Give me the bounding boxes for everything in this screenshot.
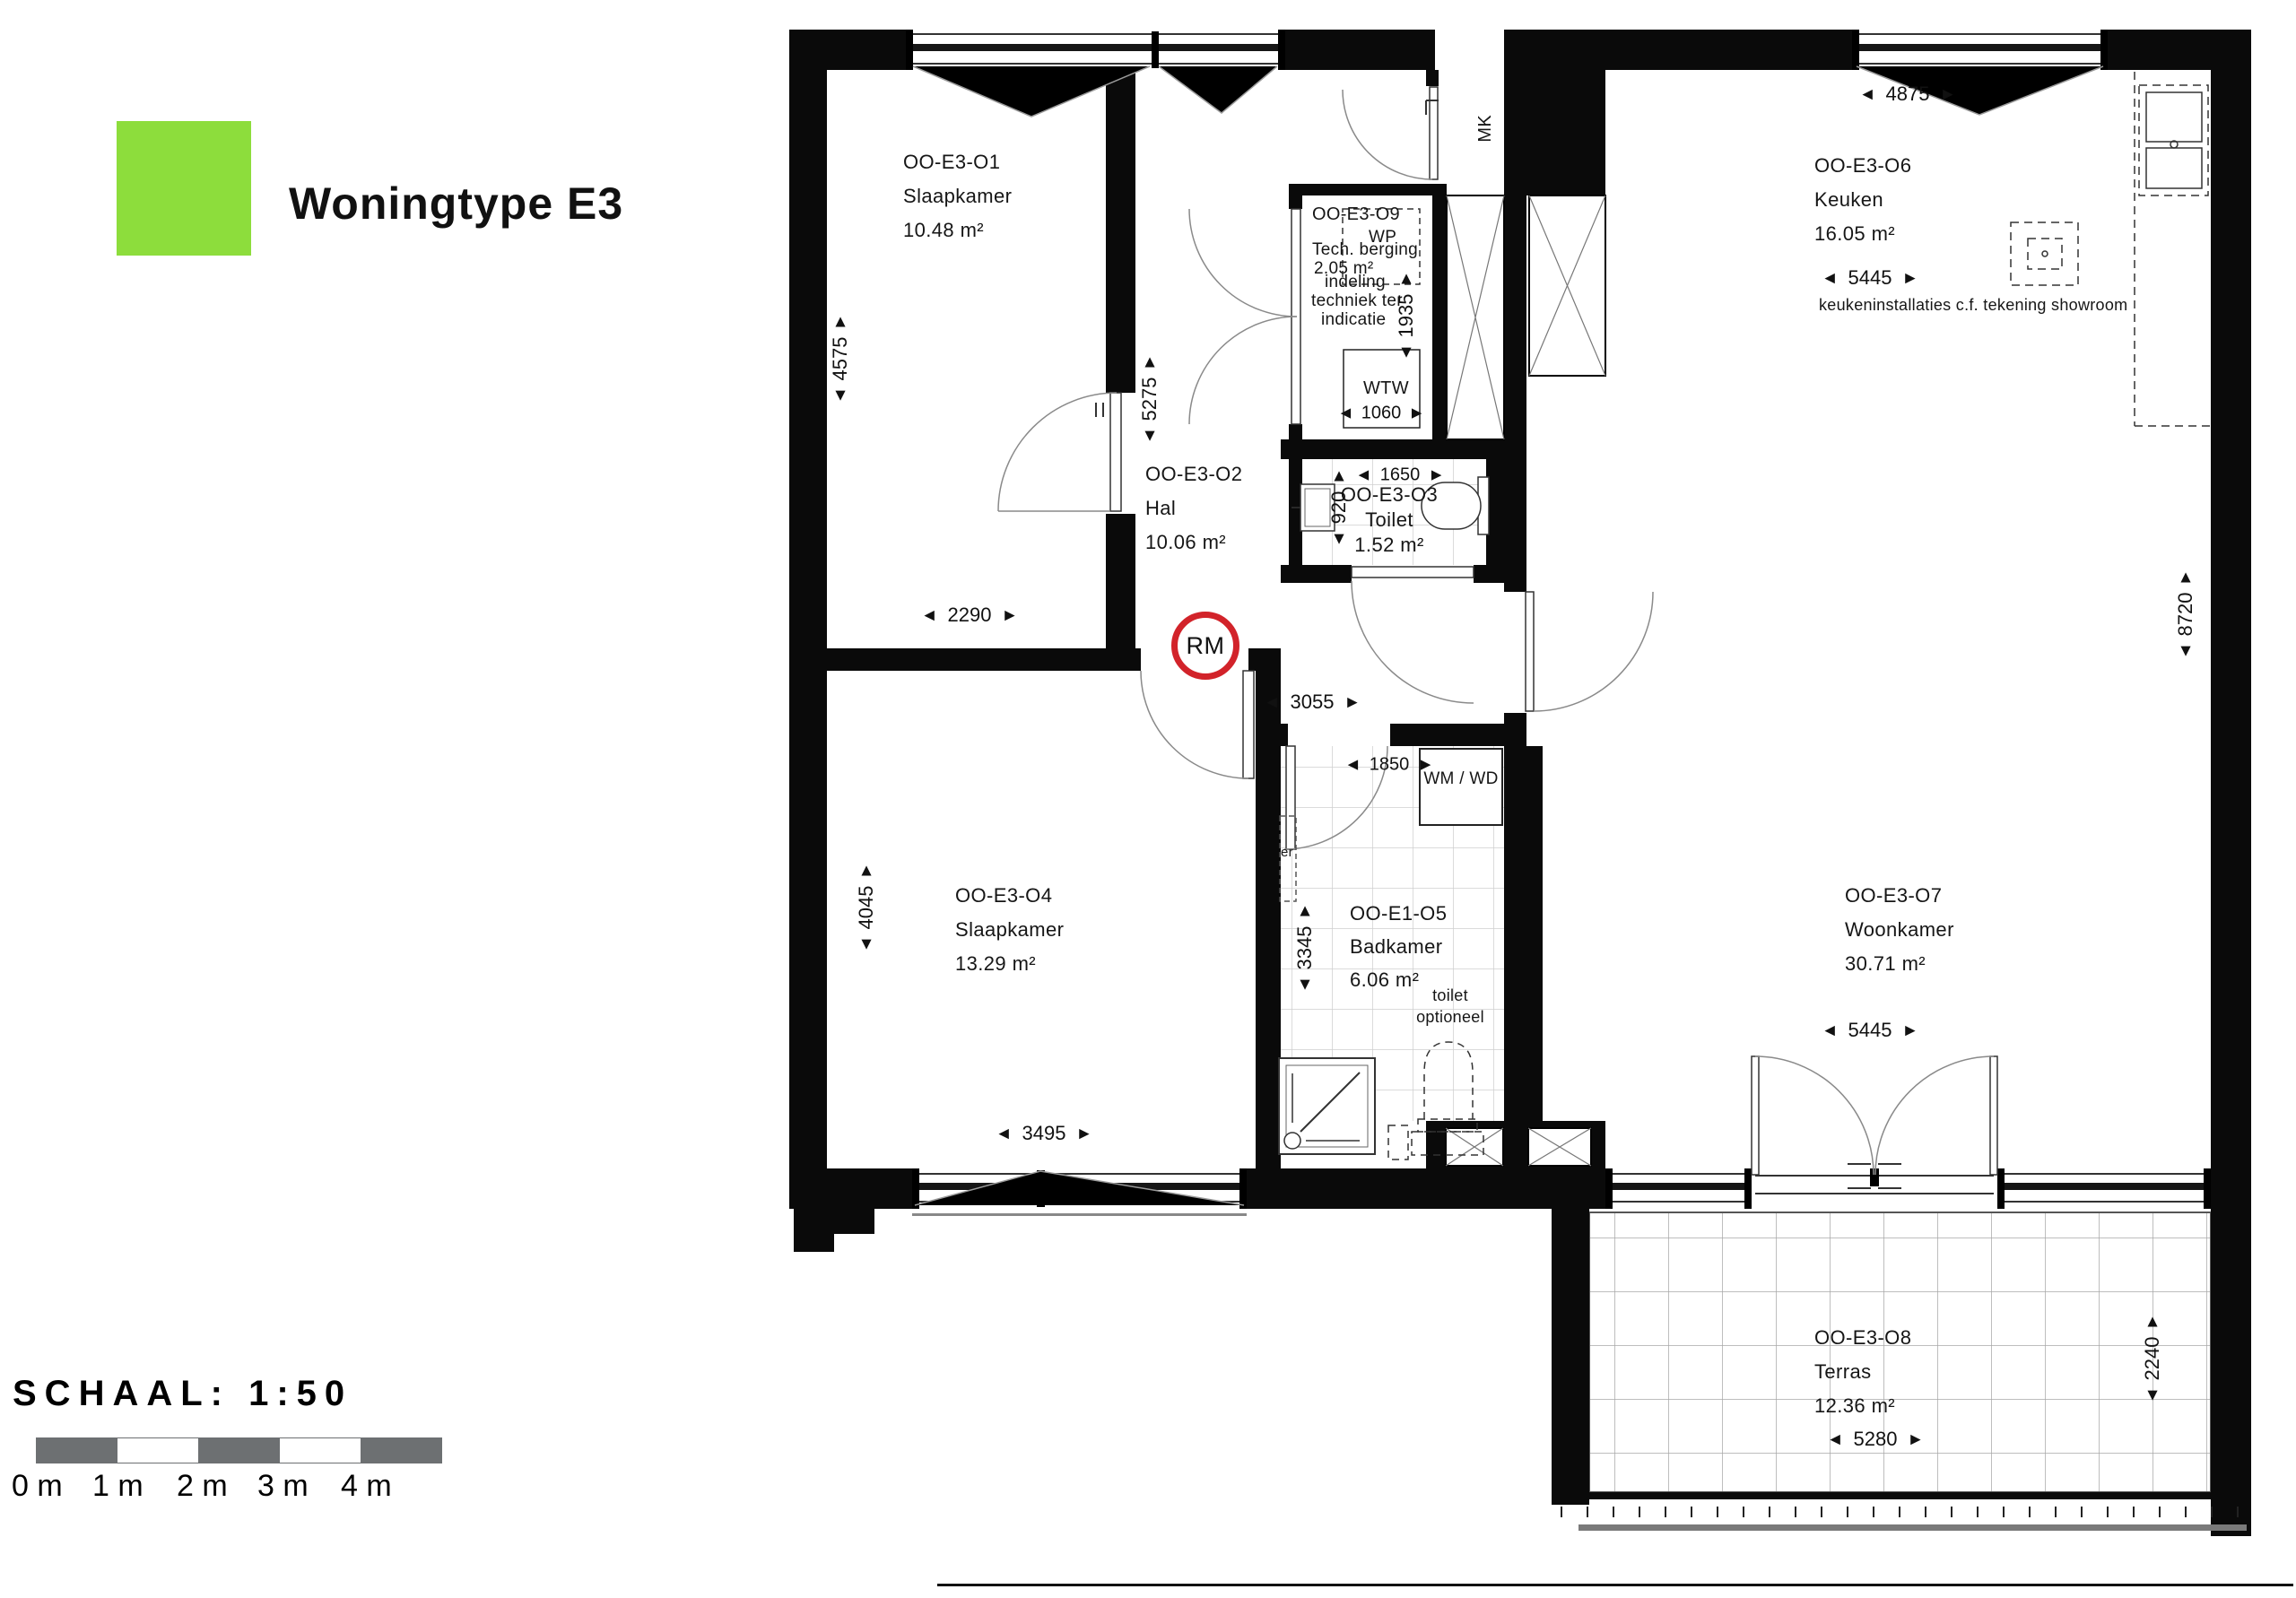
- room-name: Badkamer: [1350, 930, 1447, 963]
- room-name: Slaapkamer: [955, 913, 1064, 947]
- arrow-up-icon: ▲: [1398, 271, 1415, 288]
- scale-tick-2: 2 m: [177, 1469, 228, 1504]
- scale-bar-segment: [117, 1438, 198, 1463]
- arrow-left-icon: ◄: [1355, 467, 1372, 484]
- scale-bar-segment: [361, 1438, 441, 1463]
- window-top-keuken: [1852, 30, 2108, 70]
- room-code: OO-E3-O3: [1341, 482, 1438, 508]
- arrow-right-icon: ►: [1901, 1022, 1918, 1039]
- dim-value: 3495: [1022, 1122, 1066, 1145]
- room-code: OO-E1-O5: [1350, 897, 1447, 930]
- window-bottom-woonkamer-right: [1997, 1168, 2211, 1209]
- wtw-label: WTW: [1363, 378, 1409, 399]
- arrow-up-icon: ▲: [832, 314, 849, 331]
- dim-badkamer-width: ◄ 1850 ►: [1344, 755, 1434, 776]
- window-top-slaapkamer: [906, 30, 1285, 70]
- arrow-left-icon: ◄: [1337, 405, 1354, 422]
- scale-bar-segment: [280, 1438, 361, 1463]
- arrow-up-icon: ▲: [1142, 354, 1159, 371]
- room-name: Keuken: [1814, 183, 1911, 217]
- room-name: Hal: [1145, 491, 1242, 525]
- tech-note-line2: techniek ter: [1311, 291, 1403, 311]
- dim-terras-width: ◄ 5280 ►: [1827, 1428, 1925, 1451]
- scale-tick-3: 3 m: [257, 1469, 309, 1504]
- scale-tick-1: 1 m: [92, 1469, 143, 1504]
- arrow-left-icon: ◄: [1827, 1431, 1844, 1448]
- scale-tick-4: 4 m: [341, 1469, 392, 1504]
- arrow-up-icon: ▲: [1331, 468, 1348, 485]
- window-sill-line: [912, 1213, 1247, 1216]
- woningtype-color-swatch: [117, 121, 251, 256]
- dim-slaap1-height: ▲ 4575 ▼: [829, 314, 852, 404]
- dim-value: 5445: [1848, 1019, 1892, 1042]
- room-area: 16.05 m²: [1814, 217, 1911, 251]
- arrow-left-icon: ◄: [996, 1125, 1013, 1142]
- rm-marker: RM: [1171, 612, 1239, 680]
- room-label-hal: OO-E3-O2 Hal 10.06 m²: [1145, 457, 1242, 560]
- terras-door-threshold: [1752, 1168, 1997, 1209]
- room-name: Toilet: [1341, 508, 1438, 533]
- arrow-down-icon: ▼: [1331, 530, 1348, 547]
- dim-right-height: ▲ 8720 ▼: [2174, 569, 2197, 660]
- dim-slaap2-width: ◄ 3495 ►: [996, 1122, 1093, 1145]
- dim-wtw-width: ◄ 1060 ►: [1337, 404, 1425, 424]
- toilet-optional-line1: toilet: [1432, 986, 1468, 1005]
- dim-value: 3055: [1291, 690, 1335, 714]
- room-code: OO-E3-O6: [1814, 149, 1911, 183]
- page-title: Woningtype E3: [289, 178, 623, 230]
- room-name: Slaapkamer: [903, 179, 1012, 213]
- room-area: 12.36 m²: [1814, 1389, 1911, 1423]
- scale-tick-0: 0 m: [12, 1469, 63, 1504]
- dim-value: 1650: [1380, 465, 1421, 486]
- scale-bar-segment: [37, 1438, 117, 1463]
- floorplan-page: Woningtype E3 OO-E3-O1 Slaapkamer 10.48 …: [0, 0, 2296, 1598]
- dim-value: 8720: [2174, 593, 2197, 637]
- arrow-down-icon: ▼: [1142, 427, 1159, 444]
- window-bottom-woonkamer-left: [1605, 1168, 1752, 1209]
- kitchen-units-dashed: [2011, 72, 2211, 426]
- rm-label: RM: [1187, 632, 1225, 660]
- dim-hal-height: ▲ 5275 ▼: [1138, 354, 1161, 445]
- room-label-slaapkamer2: OO-E3-O4 Slaapkamer 13.29 m²: [955, 879, 1064, 981]
- room-label-keuken: OO-E3-O6 Keuken 16.05 m²: [1814, 149, 1911, 251]
- scale-bar-segment: [198, 1438, 279, 1463]
- dim-value: 2240: [2141, 1337, 2164, 1381]
- room-code: OO-E3-O2: [1145, 457, 1242, 491]
- arrow-right-icon: ►: [1907, 1431, 1924, 1448]
- arrow-down-icon: ▼: [2178, 642, 2195, 659]
- arrow-up-icon: ▲: [858, 863, 875, 880]
- arrow-down-icon: ▼: [2144, 1386, 2161, 1403]
- arrow-right-icon: ►: [1901, 270, 1918, 287]
- dim-value: 3345: [1293, 926, 1317, 970]
- room-label-toilet: OO-E3-O3 Toilet 1.52 m²: [1341, 482, 1438, 558]
- arrow-right-icon: ►: [1344, 694, 1361, 711]
- dim-terras-height: ▲ 2240 ▼: [2141, 1314, 2164, 1404]
- room-code: OO-E3-O1: [903, 145, 1012, 179]
- floorplan-drawing: [0, 0, 2296, 1598]
- arrow-right-icon: ►: [1075, 1125, 1092, 1142]
- dim-value: 4575: [829, 337, 852, 381]
- arrow-right-icon: ►: [1428, 467, 1445, 484]
- arrow-left-icon: ◄: [921, 607, 938, 624]
- dim-woonkamer-width: ◄ 5445 ►: [1822, 1019, 1919, 1042]
- room-name: Terras: [1814, 1355, 1911, 1389]
- dim-hal-width: ◄ 3055 ►: [1264, 690, 1361, 714]
- dim-value: 5280: [1854, 1428, 1898, 1451]
- arrow-left-icon: ◄: [1822, 1022, 1839, 1039]
- arrow-up-icon: ▲: [1297, 903, 1314, 920]
- page-bottom-line: [937, 1584, 2293, 1586]
- keuken-note: keukeninstallaties c.f. tekening showroo…: [1819, 296, 2127, 315]
- dim-keuken-top: ◄ 4875 ►: [1859, 83, 1957, 106]
- arrow-left-icon: ◄: [1859, 86, 1876, 103]
- room-label-woonkamer: OO-E3-O7 Woonkamer 30.71 m²: [1845, 879, 1954, 981]
- dim-value: 5275: [1138, 378, 1161, 421]
- room-label-slaapkamer1: OO-E3-O1 Slaapkamer 10.48 m²: [903, 145, 1012, 248]
- terras-exterior: [937, 1512, 2293, 1586]
- room-name: Woonkamer: [1845, 913, 1954, 947]
- tech-note-line3: indicatie: [1321, 310, 1386, 330]
- mk-label: MK: [1475, 115, 1496, 143]
- arrow-down-icon: ▼: [832, 386, 849, 404]
- dim-toilet-height: ▲ 920 ▼: [1327, 468, 1351, 548]
- tech-note-line1: indeling: [1325, 273, 1386, 292]
- room-area: 30.71 m²: [1845, 947, 1954, 981]
- room-area: 1.52 m²: [1341, 533, 1438, 558]
- dim-badkamer-height: ▲ 3345 ▼: [1293, 903, 1317, 994]
- arrow-right-icon: ►: [1417, 757, 1434, 774]
- scale-bar: [36, 1437, 442, 1463]
- dim-value: 5445: [1848, 266, 1892, 290]
- dim-keuken-width: ◄ 5445 ►: [1822, 266, 1919, 290]
- dim-value: 1935: [1395, 294, 1418, 338]
- arrow-right-icon: ►: [1001, 607, 1018, 624]
- room-code: OO-E3-O7: [1845, 879, 1954, 913]
- shower: [1279, 1058, 1375, 1154]
- toilet-optional-line2: optioneel: [1416, 1008, 1484, 1027]
- room-code: OO-E3-O8: [1814, 1321, 1911, 1355]
- dim-value: 1060: [1361, 404, 1402, 424]
- room-label-badkamer: OO-E1-O5 Badkamer 6.06 m²: [1350, 897, 1447, 996]
- er-label: er: [1281, 845, 1293, 860]
- dim-value: 4875: [1886, 83, 1930, 106]
- arrow-left-icon: ◄: [1344, 757, 1361, 774]
- arrow-left-icon: ◄: [1822, 270, 1839, 287]
- room-name-techberging: Tech. berging: [1312, 240, 1418, 260]
- dim-value: 4045: [855, 886, 878, 930]
- arrow-up-icon: ▲: [2144, 1314, 2161, 1331]
- arrow-down-icon: ▼: [1398, 343, 1415, 360]
- arrow-left-icon: ◄: [1264, 694, 1281, 711]
- arrow-right-icon: ►: [1939, 86, 1956, 103]
- dim-slaap1-width: ◄ 2290 ►: [921, 604, 1019, 627]
- arrow-up-icon: ▲: [2178, 569, 2195, 586]
- room-code-techberging: OO-E3-O9: [1312, 204, 1400, 225]
- dim-value: 920: [1327, 491, 1351, 525]
- dim-toilet-width: ◄ 1650 ►: [1355, 465, 1445, 486]
- dim-slaap2-height: ▲ 4045 ▼: [855, 863, 878, 953]
- arrow-down-icon: ▼: [858, 935, 875, 952]
- arrow-right-icon: ►: [1408, 405, 1425, 422]
- arrow-down-icon: ▼: [1297, 976, 1314, 993]
- room-code: OO-E3-O4: [955, 879, 1064, 913]
- scale-title: SCHAAL: 1:50: [13, 1374, 352, 1414]
- kitchen-sink: [2042, 92, 2202, 256]
- dim-value: 1850: [1370, 755, 1410, 776]
- room-area: 10.06 m²: [1145, 525, 1242, 560]
- room-label-terras: OO-E3-O8 Terras 12.36 m²: [1814, 1321, 1911, 1423]
- room-area: 13.29 m²: [955, 947, 1064, 981]
- dim-tech-height: ▲ 1935 ▼: [1395, 271, 1418, 361]
- dim-value: 2290: [948, 604, 992, 627]
- room-area: 10.48 m²: [903, 213, 1012, 248]
- terras-outer-line: [1578, 1524, 2247, 1531]
